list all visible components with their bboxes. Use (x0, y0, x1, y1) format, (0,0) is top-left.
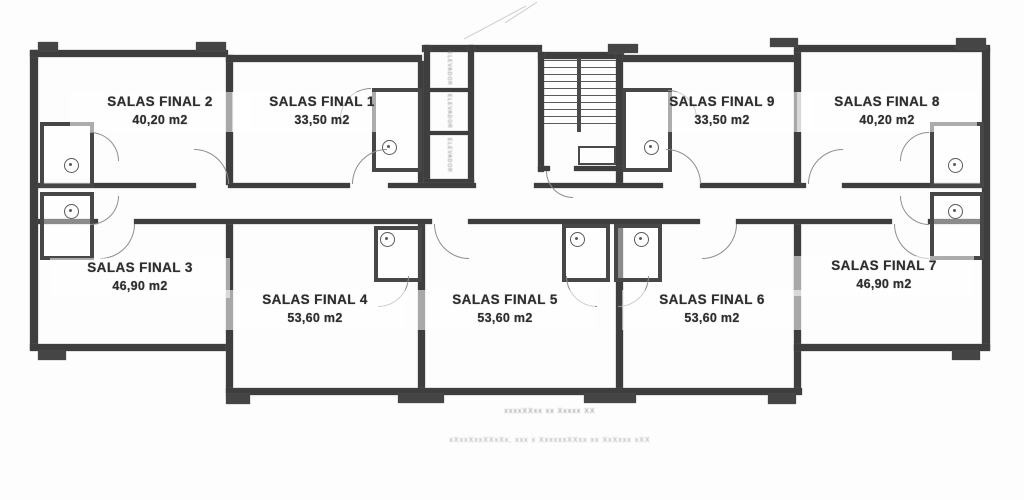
column-tab (768, 394, 796, 404)
caption-line-1: xxxxXXxx xx Xxxxx XX (465, 408, 635, 415)
door-swing-arc (900, 132, 929, 161)
corridor-wall (700, 183, 806, 188)
door-swing-arc (434, 224, 469, 259)
column-tab (956, 38, 986, 49)
room-area: 33,50 m2 (632, 111, 812, 129)
room-label-salas-final-5: SALAS FINAL 5 53,60 m2 (415, 290, 595, 330)
room-name: SALAS FINAL 8 (797, 92, 977, 111)
room-label-salas-final-1: SALAS FINAL 1 33,50 m2 (232, 92, 412, 132)
room-label-salas-final-6: SALAS FINAL 6 53,60 m2 (622, 290, 802, 330)
room-name: SALAS FINAL 7 (794, 256, 974, 275)
stair-divider (577, 58, 581, 132)
stairwell-wall (538, 52, 624, 59)
column-tab (608, 44, 638, 53)
door-swing-arc (702, 224, 737, 259)
stair-landing-step (578, 146, 616, 165)
door-swing-arc (666, 149, 701, 184)
room-label-salas-final-4: SALAS FINAL 4 53,60 m2 (225, 290, 405, 330)
column-tab (398, 394, 444, 403)
toilet-icon (64, 204, 79, 219)
room-label-salas-final-2: SALAS FINAL 2 40,20 m2 (70, 92, 250, 132)
wall (794, 344, 990, 351)
toilet-icon (64, 158, 79, 173)
room-name: SALAS FINAL 2 (70, 92, 250, 111)
column-tab (38, 42, 58, 51)
toilet-icon (380, 232, 395, 247)
wall (226, 55, 422, 62)
room-name: SALAS FINAL 4 (225, 290, 405, 309)
column-tab (226, 394, 250, 404)
elevator-label: ELEVADOR (430, 48, 468, 88)
room-label-salas-final-9: SALAS FINAL 9 33,50 m2 (632, 92, 812, 132)
elevator-label: ELEVADOR (430, 91, 468, 131)
door-swing-arc (894, 224, 929, 259)
room-label-salas-final-3: SALAS FINAL 3 46,90 m2 (50, 258, 230, 298)
door-swing-arc (546, 171, 573, 198)
caption-line-2: xXxxXxxXXxXx, xxx x XxxxxxXXxx xx XxXxxx… (420, 437, 680, 444)
room-area: 40,20 m2 (70, 111, 250, 129)
corridor-wall (134, 219, 432, 224)
room-area: 40,20 m2 (797, 111, 977, 129)
room-name: SALAS FINAL 9 (632, 92, 812, 111)
column-tab (584, 394, 636, 403)
elevator-label: ELEVADOR (430, 135, 468, 175)
corridor-wall (388, 183, 476, 188)
toilet-icon (570, 232, 585, 247)
pencil-mark (505, 2, 537, 24)
wall (30, 50, 228, 57)
floor-plan-drawing: ELEVADOR ELEVADOR ELEVADOR SALAS FINAL 2… (0, 0, 1024, 500)
room-area: 46,90 m2 (794, 275, 974, 293)
door-swing-arc (90, 132, 119, 161)
wall (623, 55, 800, 62)
door-swing-arc (808, 149, 843, 184)
room-name: SALAS FINAL 3 (50, 258, 230, 277)
corridor-wall (228, 183, 350, 188)
room-label-salas-final-7: SALAS FINAL 7 46,90 m2 (794, 256, 974, 296)
bathroom (40, 192, 94, 260)
door-swing-arc (90, 196, 119, 225)
column-tab (952, 351, 980, 360)
door-swing-arc (900, 196, 929, 225)
bathroom (930, 192, 984, 260)
stairwell-wall (574, 166, 622, 171)
column-tab (38, 351, 66, 360)
toilet-icon (948, 158, 963, 173)
room-area: 46,90 m2 (50, 277, 230, 295)
room-name: SALAS FINAL 6 (622, 290, 802, 309)
floor-plan-scan: ELEVADOR ELEVADOR ELEVADOR SALAS FINAL 2… (0, 0, 1024, 500)
toilet-icon (634, 232, 649, 247)
toilet-icon (948, 204, 963, 219)
bathroom (562, 224, 610, 282)
corridor-wall (736, 219, 892, 224)
column-tab (196, 42, 226, 51)
toilet-icon (644, 140, 659, 155)
room-area: 53,60 m2 (415, 309, 595, 327)
room-area: 53,60 m2 (622, 309, 802, 327)
room-name: SALAS FINAL 5 (415, 290, 595, 309)
column-tab (770, 38, 798, 47)
pencil-mark (464, 6, 526, 40)
door-swing-arc (100, 224, 135, 259)
wall (30, 50, 38, 350)
room-name: SALAS FINAL 1 (232, 92, 412, 111)
wall (226, 388, 802, 395)
wall (30, 344, 228, 351)
room-area: 33,50 m2 (232, 111, 412, 129)
room-label-salas-final-8: SALAS FINAL 8 40,20 m2 (797, 92, 977, 132)
room-area: 53,60 m2 (225, 309, 405, 327)
elevator-shaft-wall (468, 45, 474, 185)
door-swing-arc (194, 149, 229, 184)
door-swing-arc (352, 149, 387, 184)
